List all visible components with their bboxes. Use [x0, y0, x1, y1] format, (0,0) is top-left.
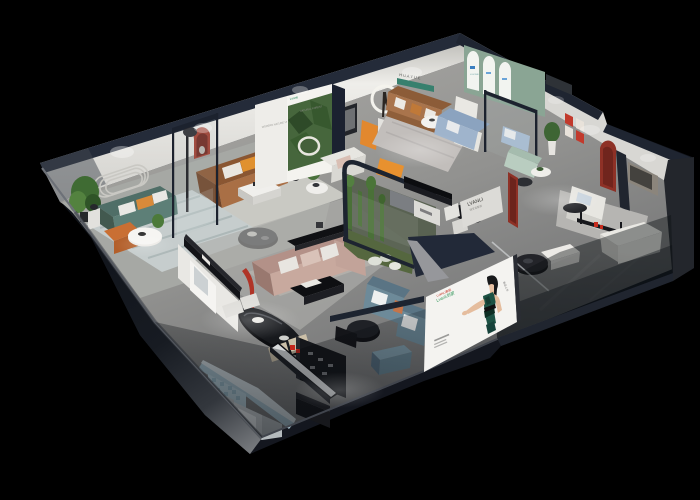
svg-text:H HOME: H HOME	[470, 74, 479, 76]
